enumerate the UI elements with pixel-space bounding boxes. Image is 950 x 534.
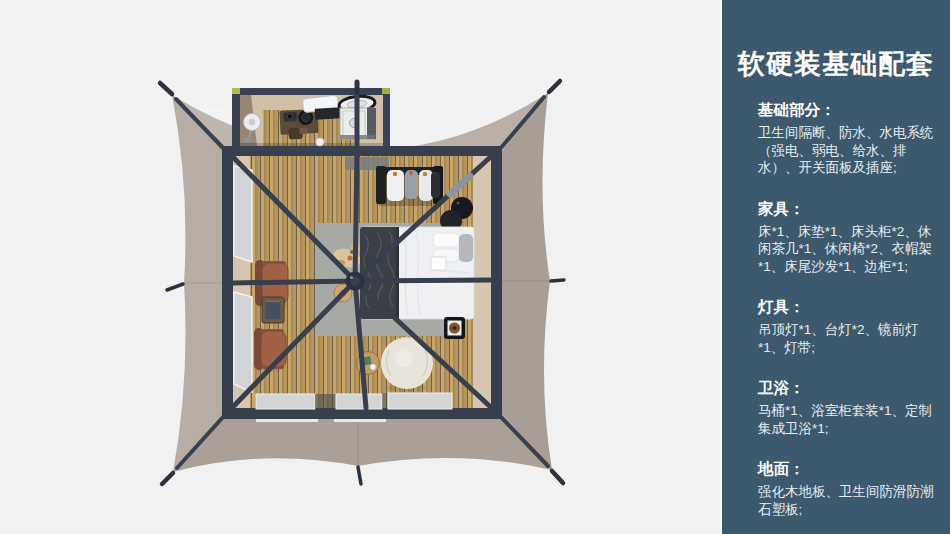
section-heading: 灯具： <box>758 297 936 318</box>
bed-tray <box>431 257 446 270</box>
section-flooring: 地面： 强化木地板、卫生间防滑防潮石塑板; <box>758 459 936 518</box>
section-body: 床*1、床垫*1、床头柜*2、休闲茶几*1、休闲椅*2、衣帽架*1、床尾沙发*1… <box>758 223 936 276</box>
slide: 软硬装基础配套 基础部分： 卫生间隔断、防水、水电系统（强电、弱电、给水、排水）… <box>0 0 950 534</box>
section-body: 卫生间隔断、防水、水电系统（强电、弱电、给水、排水）、开关面板及插座; <box>758 124 936 177</box>
corner-accent <box>232 88 240 94</box>
section-furniture: 家具： 床*1、床垫*1、床头柜*2、休闲茶几*1、休闲椅*2、衣帽架*1、床尾… <box>758 199 936 276</box>
info-sidebar: 软硬装基础配套 基础部分： 卫生间隔断、防水、水电系统（强电、弱电、给水、排水）… <box>720 0 950 534</box>
section-basics: 基础部分： 卫生间隔断、防水、水电系统（强电、弱电、给水、排水）、开关面板及插座… <box>758 100 936 177</box>
tray-table <box>444 317 465 339</box>
bathroom-pod <box>232 88 390 152</box>
floor-drain <box>316 138 324 146</box>
center-hub <box>346 272 365 291</box>
section-heading: 基础部分： <box>758 100 936 121</box>
corner-accent <box>382 88 390 94</box>
section-heading: 家具： <box>758 199 936 220</box>
cup <box>370 364 376 370</box>
section-lighting: 灯具： 吊顶灯*1、台灯*2、镜前灯*1、灯带; <box>758 297 936 356</box>
tent-floorplan-render <box>0 0 722 534</box>
section-body: 强化木地板、卫生间防滑防潮石塑板; <box>758 483 936 518</box>
tent-floorplan-svg <box>0 0 722 534</box>
sidebar-sections: 基础部分： 卫生间隔断、防水、水电系统（强电、弱电、给水、排水）、开关面板及插座… <box>722 100 950 518</box>
section-body: 马桶*1、浴室柜套装*1、定制集成卫浴*1; <box>758 402 936 437</box>
bathroom-shelf <box>315 107 342 120</box>
pillow <box>433 233 459 247</box>
side-table <box>262 297 284 323</box>
section-heading: 卫浴： <box>758 378 936 399</box>
section-body: 吊顶灯*1、台灯*2、镜前灯*1、灯带; <box>758 321 936 356</box>
bed <box>360 227 474 319</box>
section-bathroom: 卫浴： 马桶*1、浴室柜套装*1、定制集成卫浴*1; <box>758 378 936 437</box>
sidebar-title: 软硬装基础配套 <box>730 46 942 82</box>
glass-doors <box>256 393 452 409</box>
pillow-gray <box>459 234 473 262</box>
section-heading: 地面： <box>758 459 936 480</box>
